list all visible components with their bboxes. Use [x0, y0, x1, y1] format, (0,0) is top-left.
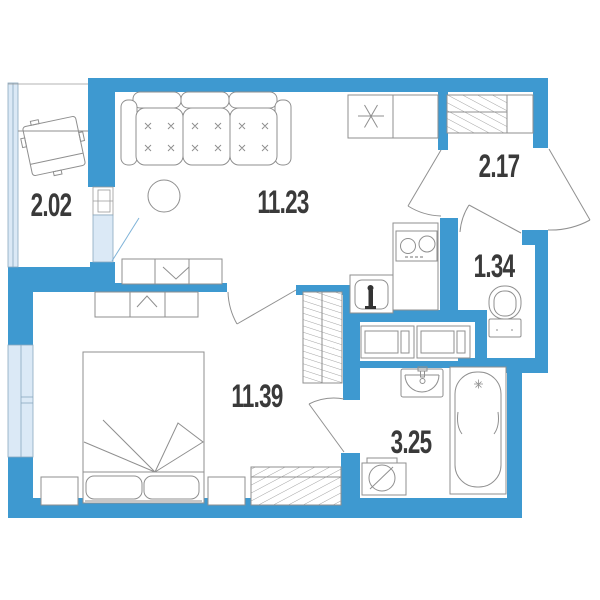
balcony-door-window-icon [93, 187, 113, 262]
tv-stand-icon [122, 259, 222, 284]
bathtub-icon [450, 367, 506, 494]
room-label-living-kitchen: 11.23 [257, 186, 308, 218]
wardrobe-icon [251, 467, 341, 505]
round-table-icon [148, 180, 180, 212]
room-label-bathroom: 3.25 [391, 426, 432, 458]
dresser-icon [95, 292, 198, 317]
kitchen-sink-icon [350, 275, 393, 313]
appliance-icon [417, 326, 470, 358]
entrance-door-swing-icon [548, 149, 590, 230]
toilet-icon [489, 286, 521, 337]
bathroom-sink-icon [401, 367, 443, 397]
nightstand-icon [41, 477, 78, 505]
living-door-swing-icon [408, 150, 441, 216]
floor-plan: 2.02 11.23 2.17 1.34 11.39 3.25 [0, 0, 600, 600]
stove-icon [393, 223, 438, 310]
room-label-balcony: 2.02 [31, 189, 72, 221]
room-label-wc: 1.34 [474, 250, 515, 282]
bed-icon [83, 352, 204, 503]
bathroom-door-swing-icon [309, 398, 344, 452]
balcony-door-swing-icon [112, 218, 139, 261]
kitchen-counter-icon [348, 95, 438, 138]
room-label-hallway: 2.17 [479, 150, 520, 182]
room-label-bedroom: 11.39 [231, 380, 282, 412]
wc-door-swing-icon [460, 205, 521, 233]
closet-icon [303, 292, 342, 383]
appliance-icon [361, 326, 414, 358]
bedroom-door-swing-icon [228, 290, 296, 324]
floor-plan-drawing [0, 0, 600, 600]
washing-machine-icon [362, 458, 406, 495]
balcony-chair-icon [18, 111, 91, 181]
hallway-closet-icon [447, 95, 533, 133]
bedroom-window-icon [8, 345, 33, 457]
sofa-icon [121, 92, 291, 165]
nightstand-icon [208, 477, 245, 505]
balcony-glazing-icon [8, 83, 88, 267]
